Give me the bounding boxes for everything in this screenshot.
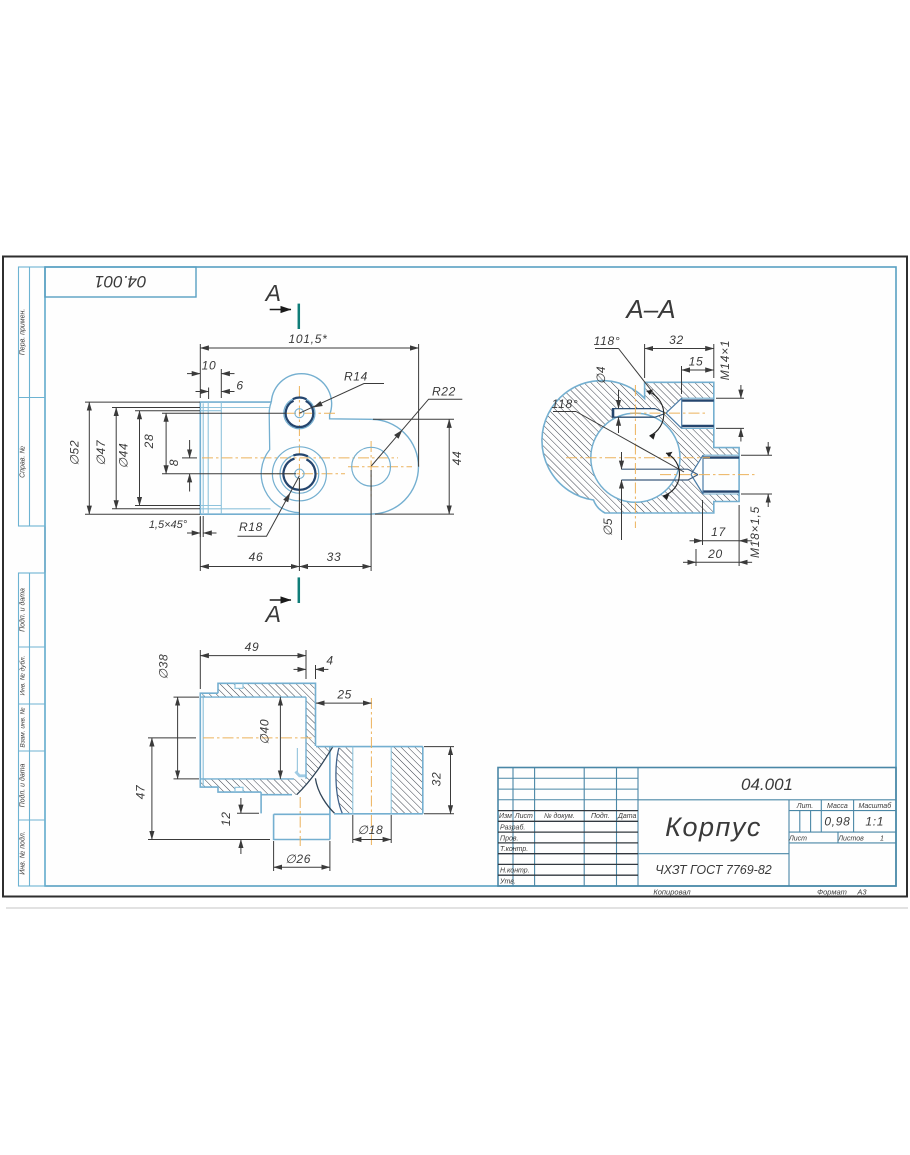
svg-text:A: A	[264, 280, 281, 306]
svg-text:0,98: 0,98	[824, 815, 850, 829]
svg-text:M18×1,5: M18×1,5	[748, 506, 762, 558]
svg-text:Подп. и дата: Подп. и дата	[19, 763, 27, 807]
svg-text:Инв. № дубл.: Инв. № дубл.	[19, 655, 27, 695]
svg-text:Взам. инв. №: Взам. инв. №	[20, 707, 27, 747]
svg-text:4: 4	[326, 654, 333, 668]
svg-text:Н.контр.: Н.контр.	[500, 868, 530, 875]
svg-text:∅18: ∅18	[357, 823, 383, 837]
svg-text:17: 17	[711, 525, 726, 539]
svg-text:20: 20	[707, 547, 723, 561]
svg-text:1,5×45°: 1,5×45°	[149, 519, 188, 531]
svg-text:Изм: Изм	[499, 813, 512, 820]
svg-text:Масштаб: Масштаб	[858, 802, 892, 810]
svg-text:∅52: ∅52	[68, 440, 82, 466]
svg-text:118°: 118°	[594, 334, 621, 348]
svg-text:46: 46	[249, 550, 264, 564]
svg-text:Подп. и дата: Подп. и дата	[19, 588, 27, 632]
svg-text:ЧХЗТ ГОСТ 7769-82: ЧХЗТ ГОСТ 7769-82	[655, 863, 772, 877]
svg-text:Инв. № подл.: Инв. № подл.	[19, 831, 27, 874]
svg-text:47: 47	[134, 784, 148, 799]
svg-text:25: 25	[336, 688, 352, 702]
svg-text:33: 33	[327, 550, 342, 564]
svg-text:Листов: Листов	[837, 835, 864, 842]
svg-text:∅40: ∅40	[258, 719, 272, 745]
svg-text:Пров.: Пров.	[500, 835, 519, 842]
svg-text:32: 32	[669, 333, 684, 347]
svg-text:Перв. примен.: Перв. примен.	[20, 309, 27, 356]
svg-text:Т.контр.: Т.контр.	[500, 846, 528, 853]
svg-text:R18: R18	[239, 520, 263, 534]
svg-text:Корпус: Корпус	[665, 812, 762, 842]
svg-text:∅26: ∅26	[285, 852, 311, 866]
svg-text:Масса: Масса	[827, 803, 848, 810]
svg-text:6: 6	[236, 379, 243, 393]
svg-text:118°: 118°	[552, 397, 579, 411]
svg-text:M14×1: M14×1	[718, 340, 732, 381]
svg-text:Копировал: Копировал	[653, 888, 691, 897]
svg-text:№ докум.: № докум.	[544, 812, 575, 820]
svg-text:Лист: Лист	[514, 813, 533, 820]
svg-text:∅44: ∅44	[117, 443, 131, 469]
svg-text:Справ. №: Справ. №	[20, 446, 27, 478]
svg-text:А3: А3	[856, 888, 867, 897]
svg-text:44: 44	[450, 451, 464, 466]
svg-text:04.001: 04.001	[95, 272, 147, 291]
svg-text:Дата: Дата	[617, 813, 637, 820]
svg-text:∅47: ∅47	[94, 439, 108, 466]
svg-text:Лист: Лист	[788, 835, 807, 842]
svg-text:R14: R14	[344, 370, 368, 384]
svg-text:1: 1	[880, 835, 884, 842]
svg-text:∅5: ∅5	[601, 518, 615, 537]
svg-text:32: 32	[430, 772, 444, 787]
svg-text:28: 28	[142, 434, 156, 450]
svg-text:Подп.: Подп.	[591, 812, 610, 820]
svg-text:101,5*: 101,5*	[289, 332, 328, 346]
svg-text:8: 8	[167, 459, 181, 466]
svg-text:∅4: ∅4	[594, 366, 608, 385]
svg-text:∅38: ∅38	[157, 654, 171, 680]
svg-text:A: A	[264, 601, 281, 627]
svg-text:12: 12	[219, 811, 233, 826]
svg-text:Утв.: Утв.	[499, 878, 516, 885]
svg-text:Лит.: Лит.	[796, 803, 813, 810]
svg-text:15: 15	[689, 355, 704, 369]
svg-text:A–A: A–A	[624, 294, 675, 324]
svg-text:Формат: Формат	[817, 888, 847, 897]
svg-text:49: 49	[245, 640, 260, 654]
svg-text:1:1: 1:1	[865, 815, 884, 829]
svg-text:Разраб.: Разраб.	[500, 824, 525, 832]
svg-text:R22: R22	[432, 385, 456, 399]
svg-text:10: 10	[202, 359, 217, 373]
svg-text:04.001: 04.001	[741, 775, 793, 794]
